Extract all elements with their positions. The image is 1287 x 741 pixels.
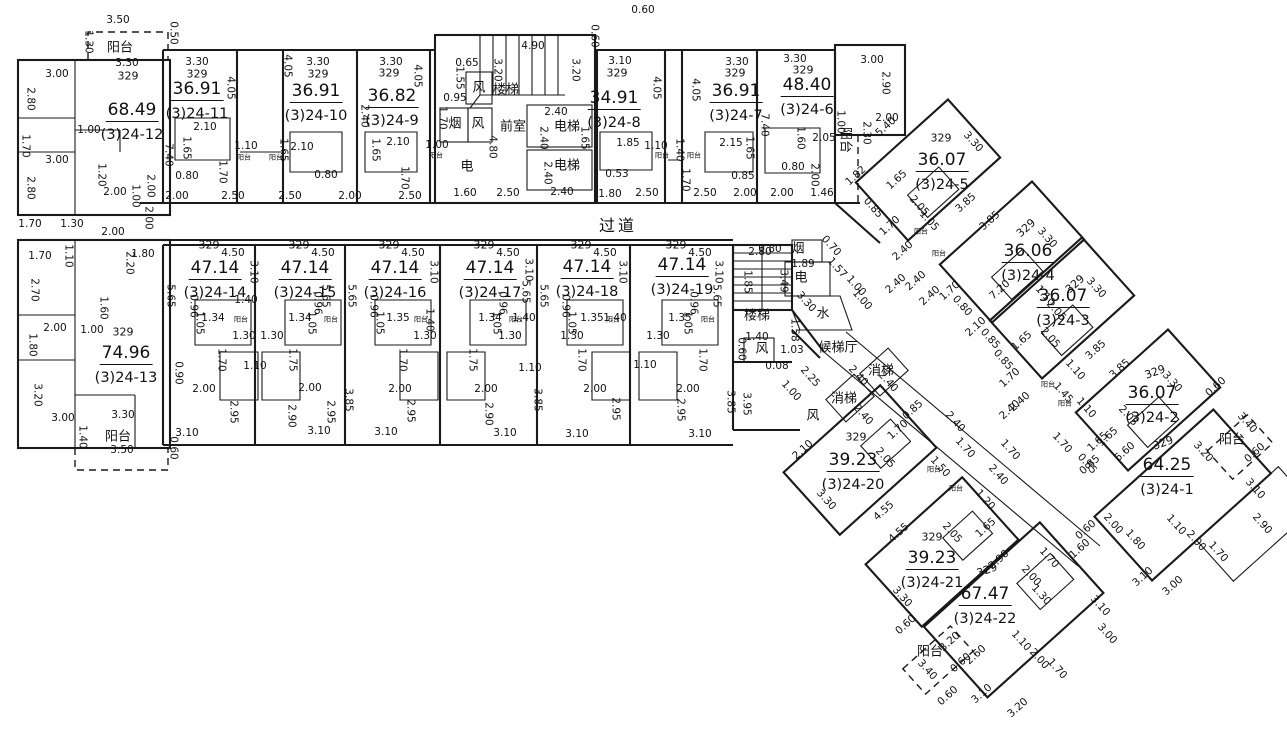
dimension-label: 5.65 <box>346 284 357 307</box>
balcony-label: 阳台 <box>234 317 248 324</box>
room-label: 电梯 <box>554 160 580 173</box>
dimension-label: 4.50 <box>401 248 424 259</box>
dimension-label: 2.00 <box>192 384 215 395</box>
area-code-label: 329 <box>308 69 329 80</box>
unit-area-label: 68.49 <box>106 102 159 122</box>
dimension-label: 2.00 <box>388 384 411 395</box>
dimension-label: 2.95 <box>325 400 336 423</box>
dimension-label: 2.05 <box>812 133 835 144</box>
dimension-label: 1.20 <box>96 163 107 186</box>
room-label: 烟 <box>791 243 804 256</box>
unit-id-label: (3)24-4 <box>1001 269 1054 284</box>
unit-area-label: 47.14 <box>561 259 614 279</box>
dimension-label: 4.05 <box>651 76 662 99</box>
balcony-label: 阳台 <box>429 153 443 160</box>
dimension-label: 1.70 <box>216 348 227 371</box>
unit-id-label: (3)24-12 <box>101 128 164 143</box>
dimension-label: 2.40 <box>550 187 573 198</box>
dimension-label: 3.20 <box>492 58 503 81</box>
unit-area-label: 47.14 <box>369 260 422 280</box>
dimension-label: 1.58 <box>789 318 800 341</box>
dimension-label: 1.65 <box>181 136 192 159</box>
dimension-label: 1.80 <box>131 249 154 260</box>
dimension-label: 1.80 <box>598 189 621 200</box>
dimension-label: 2.50 <box>496 188 519 199</box>
unit-id-label: (3)24-13 <box>95 371 158 386</box>
dimension-label: 1.80 <box>27 333 38 356</box>
dimension-label: 2.95 <box>405 399 416 422</box>
dimension-label: 1.65 <box>744 136 755 159</box>
unit-id-label: (3)24-6 <box>780 103 833 118</box>
dimension-label: 1.89 <box>791 259 814 270</box>
dimension-label: 3.10 <box>617 260 628 283</box>
dimension-label: 2.80 <box>748 247 771 258</box>
balcony-label: 阳台 <box>324 317 338 324</box>
dimension-label: 0.50 <box>168 21 179 44</box>
dimension-label: 2.15 <box>719 138 742 149</box>
unit-area-label: 64.25 <box>1141 457 1194 477</box>
dimension-label: 0.08 <box>765 361 788 372</box>
dimension-label: 3.50 <box>106 15 129 26</box>
dimension-label: 3.50 <box>110 445 133 456</box>
unit-id-label: (3)24-5 <box>915 178 968 193</box>
dimension-label: 5.65 <box>538 284 549 307</box>
dimension-label: 1.30 <box>232 331 255 342</box>
dimension-label: 3.00 <box>45 155 68 166</box>
dimension-label: 3.30 <box>306 57 329 68</box>
dimension-label: 2.00 <box>474 384 497 395</box>
dimension-label: 2.30 <box>861 121 872 144</box>
room-label: 过道 <box>599 218 637 234</box>
dimension-label: 3.10 <box>374 427 397 438</box>
dimension-label: 2.70 <box>29 278 40 301</box>
dimension-label: 2.50 <box>398 191 421 202</box>
dimension-label: 1.70 <box>397 348 408 371</box>
area-code-label: 329 <box>113 327 134 338</box>
dimension-label: 1.00 <box>80 325 103 336</box>
dimension-label: 5.65 <box>165 284 176 307</box>
dimension-label: 3.00 <box>51 413 74 424</box>
dimension-label: 3.10 <box>493 428 516 439</box>
dimension-label: 1.35 <box>580 313 603 324</box>
dimension-label: 3.10 <box>175 428 198 439</box>
dimension-label: 7.40 <box>759 113 770 136</box>
dimension-label: 2.50 <box>635 188 658 199</box>
dimension-label: 4.50 <box>221 248 244 259</box>
dimension-label: 4.90 <box>521 41 544 52</box>
room-label: 前室 <box>500 121 526 134</box>
dimension-label: 1.00 <box>835 110 846 133</box>
unit-id-label: (3)24-20 <box>822 478 885 493</box>
unit-area-label: 36.82 <box>366 88 419 108</box>
dimension-label: 1.10 <box>518 363 541 374</box>
room-label: 风 <box>471 118 484 131</box>
dimension-label: 2.40 <box>538 126 549 149</box>
dimension-label: 1.70 <box>680 168 691 191</box>
area-code-label: 329 <box>187 69 208 80</box>
dimension-label: 3.10 <box>428 260 439 283</box>
balcony-label: 阳台 <box>237 155 251 162</box>
area-code-label: 329 <box>922 532 943 543</box>
dimension-label: 0.60 <box>589 24 600 47</box>
dimension-label: 2.95 <box>228 400 239 423</box>
dimension-label: 3.10 <box>608 56 631 67</box>
unit-area-label: 48.40 <box>781 77 834 97</box>
dimension-label: 3.10 <box>307 426 330 437</box>
room-label: 烟 <box>448 118 461 131</box>
dimension-label: 2.00 <box>733 188 756 199</box>
unit-id-label: (3)24-8 <box>587 116 640 131</box>
dimension-label: 1.30 <box>60 219 83 230</box>
dimension-label: 2.40 <box>542 161 553 184</box>
dimension-label: 0.80 <box>781 162 804 173</box>
dimension-label: 1.70 <box>217 160 228 183</box>
room-label: 水 <box>816 308 829 321</box>
dimension-label: 2.95 <box>675 398 686 421</box>
dimension-label: 2.00 <box>43 323 66 334</box>
dimension-label: 4.05 <box>225 76 236 99</box>
dimension-label: 1.05 <box>374 311 385 334</box>
dimension-label: 2.90 <box>286 404 297 427</box>
dimension-label: 1.10 <box>243 361 266 372</box>
dimension-label: 7.40 <box>163 143 174 166</box>
dimension-label: 2.00 <box>338 191 361 202</box>
dimension-label: 2.80 <box>25 87 36 110</box>
dimension-label: 1.70 <box>437 106 448 129</box>
area-code-label: 329 <box>118 71 139 82</box>
area-code-label: 329 <box>379 240 400 251</box>
dimension-label: 3.10 <box>688 429 711 440</box>
dimension-label: 4.05 <box>282 54 293 77</box>
dimension-label: 3.85 <box>343 388 354 411</box>
dimension-label: 2.00 <box>809 163 820 186</box>
dimension-label: 2.00 <box>145 174 156 197</box>
dimension-label: 3.10 <box>248 260 259 283</box>
room-label: 风 <box>755 343 768 356</box>
dimension-label: 1.55 <box>454 66 465 89</box>
dimension-label: 1.35 <box>386 313 409 324</box>
dimension-label: 3.20 <box>570 58 581 81</box>
dimension-label: 1.60 <box>98 296 109 319</box>
room-label: 消梯 <box>831 393 857 406</box>
dimension-label: 2.00 <box>298 383 321 394</box>
dimension-label: 0.80 <box>314 170 337 181</box>
balcony-label: 阳台 <box>932 251 946 258</box>
room-label: 楼梯 <box>744 310 770 323</box>
dimension-label: 2.00 <box>770 188 793 199</box>
room-label: 风 <box>806 410 819 423</box>
dimension-label: 3.10 <box>523 258 534 281</box>
dimension-label: 2.50 <box>693 188 716 199</box>
unit-area-label: 39.23 <box>827 452 880 472</box>
unit-area-label: 36.91 <box>171 81 224 101</box>
dimension-label: 3.10 <box>565 429 588 440</box>
dimension-label: 1.00 <box>130 184 141 207</box>
dimension-label: 1.85 <box>742 270 753 293</box>
room-label: 风 <box>472 82 485 95</box>
unit-area-label: 34.91 <box>588 90 641 110</box>
balcony-label: 阳台 <box>105 431 131 444</box>
dimension-label: 1.40 <box>674 138 685 161</box>
area-code-label: 329 <box>793 65 814 76</box>
dimension-label: 2.00 <box>165 191 188 202</box>
dimension-label: 2.90 <box>483 402 494 425</box>
dimension-label: 1.30 <box>83 30 94 53</box>
unit-area-label: 39.23 <box>906 550 959 570</box>
unit-id-label: (3)24-17 <box>459 286 522 301</box>
unit-id-label: (3)24-19 <box>651 283 714 298</box>
dimension-label: 2.40 <box>359 104 370 127</box>
dimension-label: 1.10 <box>633 360 656 371</box>
dimension-label: 1.30 <box>498 331 521 342</box>
dimension-label: 1.40 <box>424 308 435 331</box>
unit-id-label: (3)24-7 <box>709 109 762 124</box>
unit-id-label: (3)24-22 <box>954 612 1017 627</box>
area-code-label: 329 <box>931 133 952 144</box>
dimension-label: 2.00 <box>103 187 126 198</box>
dimension-label: 0.95 <box>443 93 466 104</box>
dimension-label: 1.70 <box>20 134 31 157</box>
unit-area-label: 36.91 <box>710 83 763 103</box>
dimension-label: 1.40 <box>77 425 88 448</box>
dimension-label: 1.40 <box>603 313 626 324</box>
dimension-label: 1.60 <box>795 126 806 149</box>
dimension-label: 1.30 <box>646 331 669 342</box>
area-code-label: 329 <box>474 240 495 251</box>
dimension-label: 1.40 <box>512 313 535 324</box>
unit-id-label: (3)24-10 <box>285 109 348 124</box>
dimension-label: 4.05 <box>412 64 423 87</box>
dimension-label: 2.10 <box>386 137 409 148</box>
dimension-label: 2.00 <box>101 227 124 238</box>
unit-area-label: 47.14 <box>189 260 242 280</box>
dimension-label: 0.80 <box>175 171 198 182</box>
dimension-label: 2.50 <box>278 191 301 202</box>
room-label: 楼梯 <box>493 84 519 97</box>
dimension-label: 2.10 <box>290 142 313 153</box>
dimension-label: 1.65 <box>370 138 381 161</box>
dimension-label: 2.80 <box>25 176 36 199</box>
dimension-label: 1.10 <box>63 244 74 267</box>
dimension-label: 1.46 <box>810 188 833 199</box>
dimension-label: 3.10 <box>713 260 724 283</box>
dimension-label: 5.65 <box>520 280 531 303</box>
unit-area-label: 47.14 <box>656 257 709 277</box>
unit-id-label: (3)24-21 <box>901 576 964 591</box>
dimension-label: 1.03 <box>780 345 803 356</box>
dimension-label: 3.20 <box>32 383 43 406</box>
dimension-label: 0.60 <box>736 337 747 360</box>
dimension-label: 3.49 <box>778 269 789 292</box>
dimension-label: 4.80 <box>487 135 498 158</box>
dimension-label: 1.60 <box>453 188 476 199</box>
unit-area-label: 36.07 <box>916 152 969 172</box>
dimension-label: 1.40 <box>745 332 768 343</box>
dimension-label: 3.85 <box>725 390 736 413</box>
balcony-label: 阳台 <box>949 486 963 493</box>
dimension-label: 1.70 <box>28 251 51 262</box>
dimension-label: 1.30 <box>413 331 436 342</box>
dimension-label: 1.30 <box>260 331 283 342</box>
dimension-label: 1.10 <box>234 141 257 152</box>
dimension-label: 1.70 <box>697 348 708 371</box>
area-code-label: 329 <box>571 240 592 251</box>
dimension-label: 1.00 <box>425 140 448 151</box>
dimension-label: 4.50 <box>593 248 616 259</box>
area-code-label: 329 <box>846 432 867 443</box>
dimension-label: 1.75 <box>287 348 298 371</box>
area-code-label: 329 <box>379 68 400 79</box>
dimension-label: 1.00 <box>77 125 100 136</box>
balcony-label: 阳台 <box>107 42 133 55</box>
dimension-label: 3.95 <box>741 392 752 415</box>
unit-id-label: (3)24-9 <box>365 114 418 129</box>
unit-id-label: (3)24-1 <box>1140 483 1193 498</box>
room-label: 电 <box>460 161 473 174</box>
dimension-label: 1.75 <box>467 348 478 371</box>
dimension-label: 1.30 <box>560 331 583 342</box>
unit-area-label: 36.91 <box>290 83 343 103</box>
room-label: 电 <box>794 272 807 285</box>
area-code-label: 329 <box>289 240 310 251</box>
dimension-label: 3.00 <box>45 69 68 80</box>
dimension-label: 1.05 <box>194 311 205 334</box>
dimension-label: 5.65 <box>711 284 722 307</box>
room-label: 电梯 <box>554 121 580 134</box>
dimension-label: 1.05 <box>682 311 693 334</box>
dimension-label: 3.30 <box>185 57 208 68</box>
dimension-label: 0.53 <box>605 169 628 180</box>
balcony-label: 阳台 <box>655 153 669 160</box>
dimension-label: 2.10 <box>193 122 216 133</box>
dimension-label: 2.00 <box>143 206 154 229</box>
dimension-label: 3.00 <box>860 55 883 66</box>
balcony-label: 阳台 <box>1219 434 1245 447</box>
floor-plan-canvas: 68.49(3)24-1236.91(3)24-1136.91(3)24-103… <box>0 0 1287 741</box>
dimension-label: 2.50 <box>221 191 244 202</box>
unit-area-label: 67.47 <box>959 586 1012 606</box>
room-label: 候梯厅 <box>818 342 857 355</box>
dimension-label: 1.05 <box>306 311 317 334</box>
dimension-label: 0.60 <box>631 5 654 16</box>
unit-area-label: 47.14 <box>464 260 517 280</box>
dimension-label: 0.60 <box>168 436 179 459</box>
dimension-label: 1.40 <box>234 295 257 306</box>
dimension-label: 2.00 <box>583 384 606 395</box>
dimension-label: 3.85 <box>532 388 543 411</box>
balcony-label: 阳台 <box>914 229 928 236</box>
dimension-label: 2.00 <box>676 384 699 395</box>
dimension-label: 4.50 <box>311 248 334 259</box>
area-code-label: 329 <box>607 68 628 79</box>
dimension-label: 0.90 <box>173 361 184 384</box>
dimension-label: 1.70 <box>399 166 410 189</box>
area-code-label: 329 <box>666 240 687 251</box>
dimension-label: 1.10 <box>644 141 667 152</box>
unit-area-label: 47.14 <box>279 260 332 280</box>
dimension-label: 3.30 <box>111 410 134 421</box>
dimension-label: 2.95 <box>610 397 621 420</box>
unit-area-label: 74.96 <box>100 345 153 365</box>
balcony-label: 阳台 <box>687 153 701 160</box>
balcony-label: 阳台 <box>701 317 715 324</box>
dimension-label: 1.70 <box>576 348 587 371</box>
area-code-label: 329 <box>199 240 220 251</box>
dimension-label: 1.85 <box>616 138 639 149</box>
dimension-label: 0.85 <box>731 171 754 182</box>
dimension-label: 2.40 <box>544 107 567 118</box>
unit-id-label: (3)24-11 <box>166 107 229 122</box>
dimension-label: 1.65 <box>579 126 590 149</box>
dimension-label: 1.65 <box>278 138 289 161</box>
area-code-label: 329 <box>725 68 746 79</box>
dimension-label: 1.70 <box>18 219 41 230</box>
dimension-label: 4.50 <box>688 248 711 259</box>
dimension-label: 2.90 <box>880 71 891 94</box>
dimension-label: 4.05 <box>690 78 701 101</box>
dimension-label: 3.30 <box>115 58 138 69</box>
dimension-label: 4.50 <box>496 248 519 259</box>
